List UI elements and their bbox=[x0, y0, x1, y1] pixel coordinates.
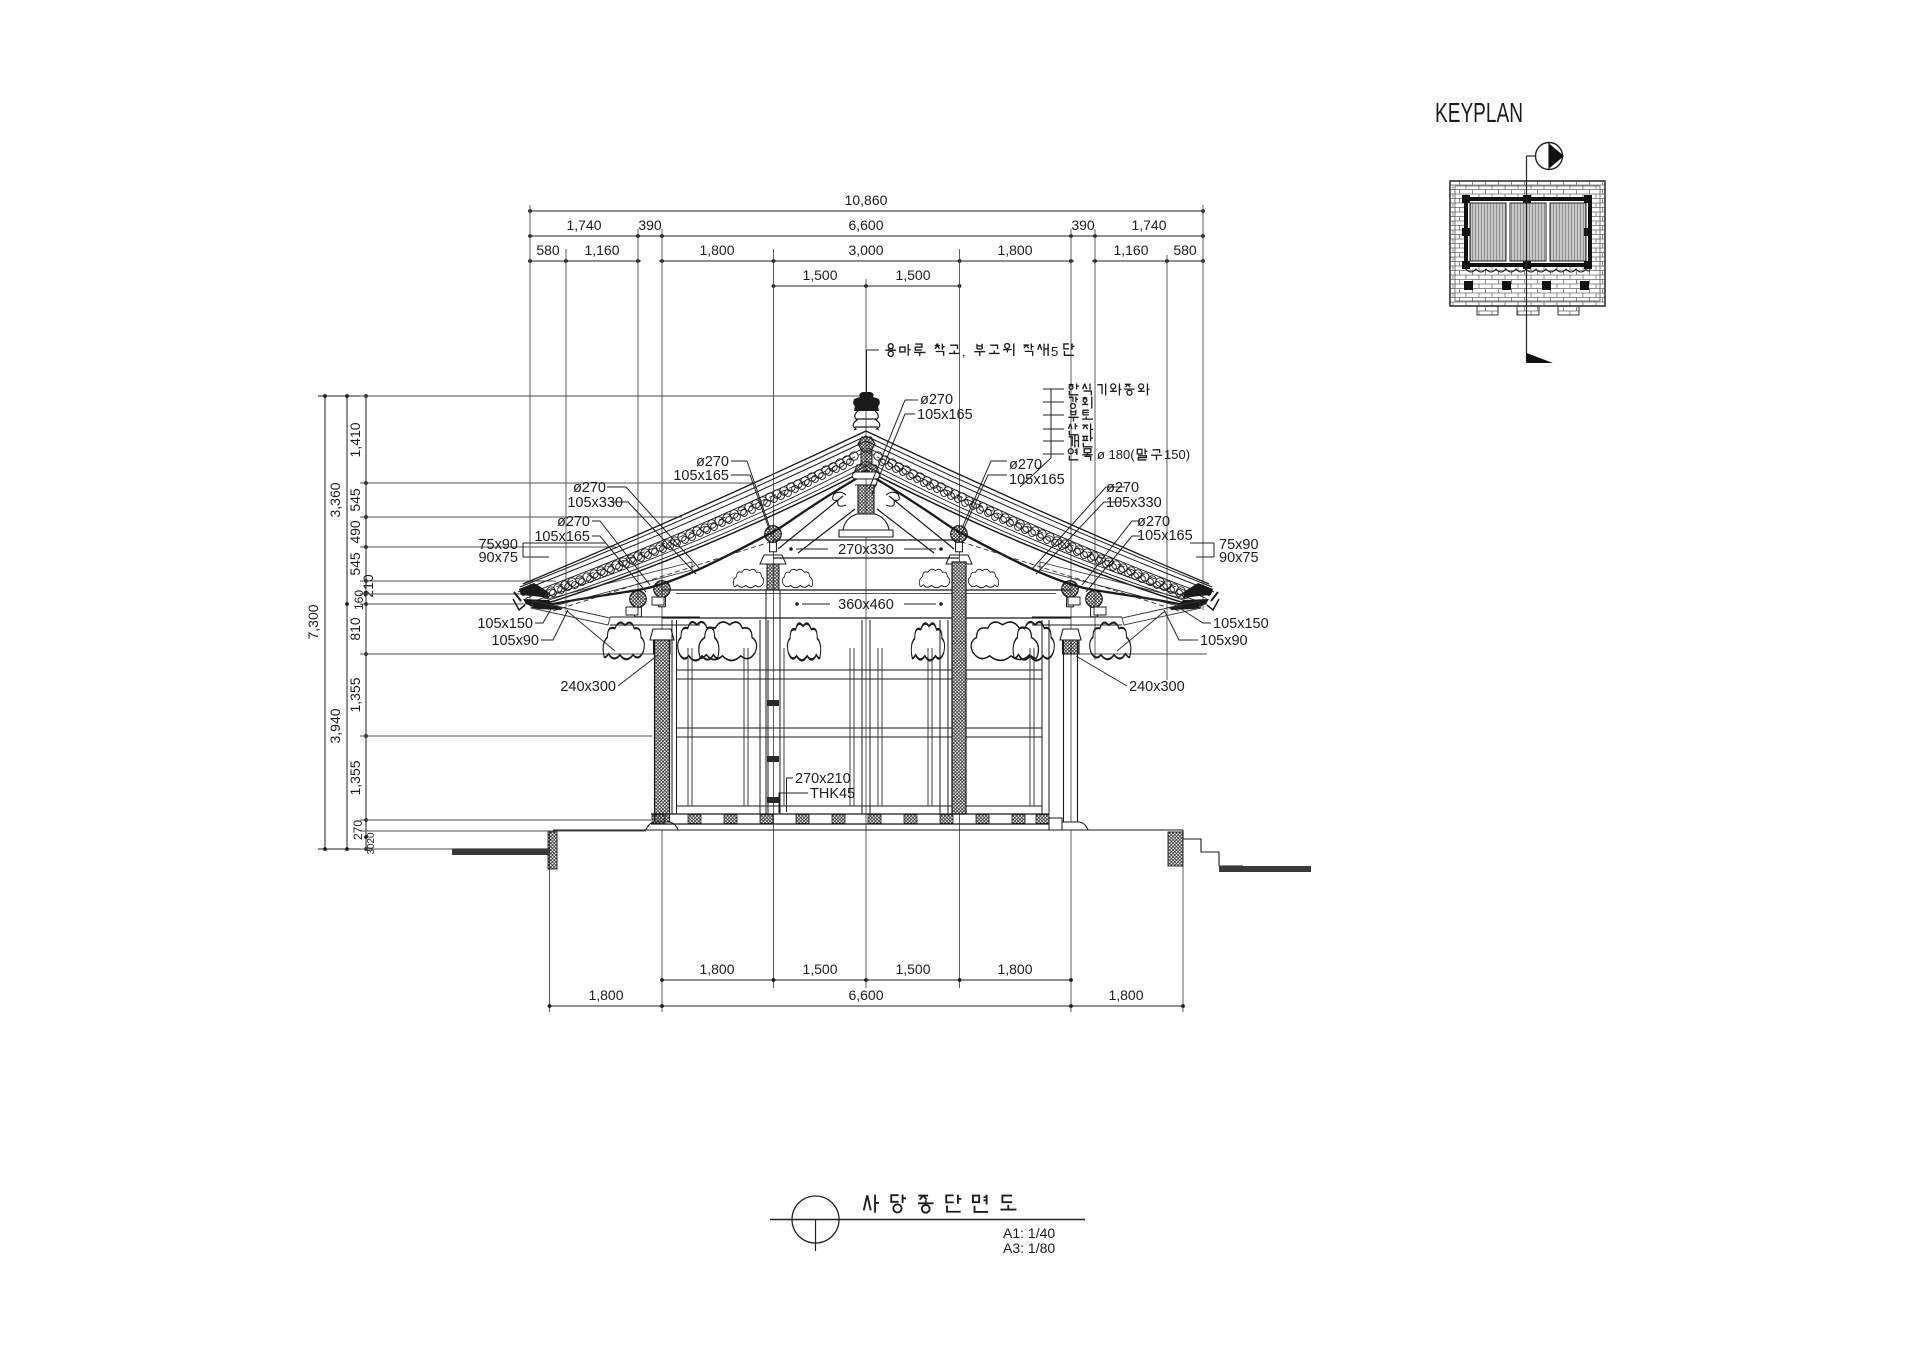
svg-text:1,740: 1,740 bbox=[566, 217, 601, 233]
svg-text:1,500: 1,500 bbox=[802, 267, 837, 283]
svg-text:KEYPLAN: KEYPLAN bbox=[1435, 97, 1523, 128]
svg-text:ø 180(: ø 180( bbox=[1097, 447, 1135, 462]
svg-text:10,860: 10,860 bbox=[845, 192, 888, 208]
svg-text:160: 160 bbox=[352, 590, 366, 610]
svg-text:1,800: 1,800 bbox=[588, 987, 623, 1003]
svg-text:1,800: 1,800 bbox=[699, 242, 734, 258]
svg-text:ø270: ø270 bbox=[557, 514, 590, 530]
svg-text:,: , bbox=[962, 344, 966, 359]
svg-text:360x460: 360x460 bbox=[838, 597, 894, 613]
svg-text:545: 545 bbox=[347, 488, 363, 512]
svg-text:105x330: 105x330 bbox=[567, 495, 623, 511]
svg-text:150): 150) bbox=[1164, 447, 1190, 462]
svg-text:1,740: 1,740 bbox=[1131, 217, 1166, 233]
svg-text:1,500: 1,500 bbox=[895, 961, 930, 977]
svg-text:1,160: 1,160 bbox=[584, 242, 619, 258]
svg-text:1,355: 1,355 bbox=[347, 760, 363, 795]
svg-text:6,600: 6,600 bbox=[848, 987, 883, 1003]
svg-text:ø270: ø270 bbox=[920, 392, 953, 408]
svg-text:105x90: 105x90 bbox=[491, 633, 539, 649]
svg-text:1,800: 1,800 bbox=[699, 961, 734, 977]
svg-text:1,160: 1,160 bbox=[1113, 242, 1148, 258]
svg-text:1,800: 1,800 bbox=[997, 242, 1032, 258]
svg-text:105x165: 105x165 bbox=[917, 407, 973, 423]
svg-text:270x210: 270x210 bbox=[795, 771, 851, 787]
svg-text:390: 390 bbox=[1071, 217, 1095, 233]
svg-text:105x150: 105x150 bbox=[1213, 616, 1269, 632]
svg-text:90x75: 90x75 bbox=[1219, 550, 1259, 566]
svg-text:5: 5 bbox=[1051, 344, 1058, 359]
svg-text:490: 490 bbox=[347, 520, 363, 544]
svg-text:3,000: 3,000 bbox=[848, 242, 883, 258]
svg-text:ø270: ø270 bbox=[1106, 480, 1139, 496]
svg-text:6,600: 6,600 bbox=[848, 217, 883, 233]
svg-text:A3: 1/80: A3: 1/80 bbox=[1003, 1240, 1055, 1256]
svg-text:240x300: 240x300 bbox=[1129, 679, 1185, 695]
svg-text:90x75: 90x75 bbox=[478, 550, 518, 566]
svg-text:270x330: 270x330 bbox=[838, 542, 894, 558]
svg-text:390: 390 bbox=[638, 217, 662, 233]
svg-text:1,800: 1,800 bbox=[1108, 987, 1143, 1003]
svg-text:THK45: THK45 bbox=[810, 786, 855, 802]
svg-text:1,500: 1,500 bbox=[895, 267, 930, 283]
svg-text:105x165: 105x165 bbox=[1009, 472, 1065, 488]
svg-text:A1: 1/40: A1: 1/40 bbox=[1003, 1225, 1055, 1241]
svg-text:1,410: 1,410 bbox=[347, 422, 363, 457]
svg-text:1,800: 1,800 bbox=[997, 961, 1032, 977]
svg-text:3,360: 3,360 bbox=[327, 482, 343, 517]
svg-text:545: 545 bbox=[347, 552, 363, 576]
svg-text:3,940: 3,940 bbox=[327, 708, 343, 743]
svg-text:105x165: 105x165 bbox=[673, 468, 729, 484]
svg-text:240x300: 240x300 bbox=[560, 679, 616, 695]
svg-text:580: 580 bbox=[536, 242, 560, 258]
svg-text:1,500: 1,500 bbox=[802, 961, 837, 977]
svg-text:105x330: 105x330 bbox=[1106, 495, 1162, 511]
svg-text:580: 580 bbox=[1173, 242, 1197, 258]
svg-text:105x150: 105x150 bbox=[477, 616, 533, 632]
svg-text:105x165: 105x165 bbox=[1137, 528, 1193, 544]
svg-text:1,355: 1,355 bbox=[347, 677, 363, 712]
svg-text:270: 270 bbox=[351, 820, 365, 840]
svg-text:7,300: 7,300 bbox=[305, 604, 321, 639]
svg-text:105x90: 105x90 bbox=[1200, 633, 1248, 649]
svg-text:ø270: ø270 bbox=[573, 480, 606, 496]
svg-text:810: 810 bbox=[347, 617, 363, 641]
svg-text:20: 20 bbox=[366, 832, 377, 844]
